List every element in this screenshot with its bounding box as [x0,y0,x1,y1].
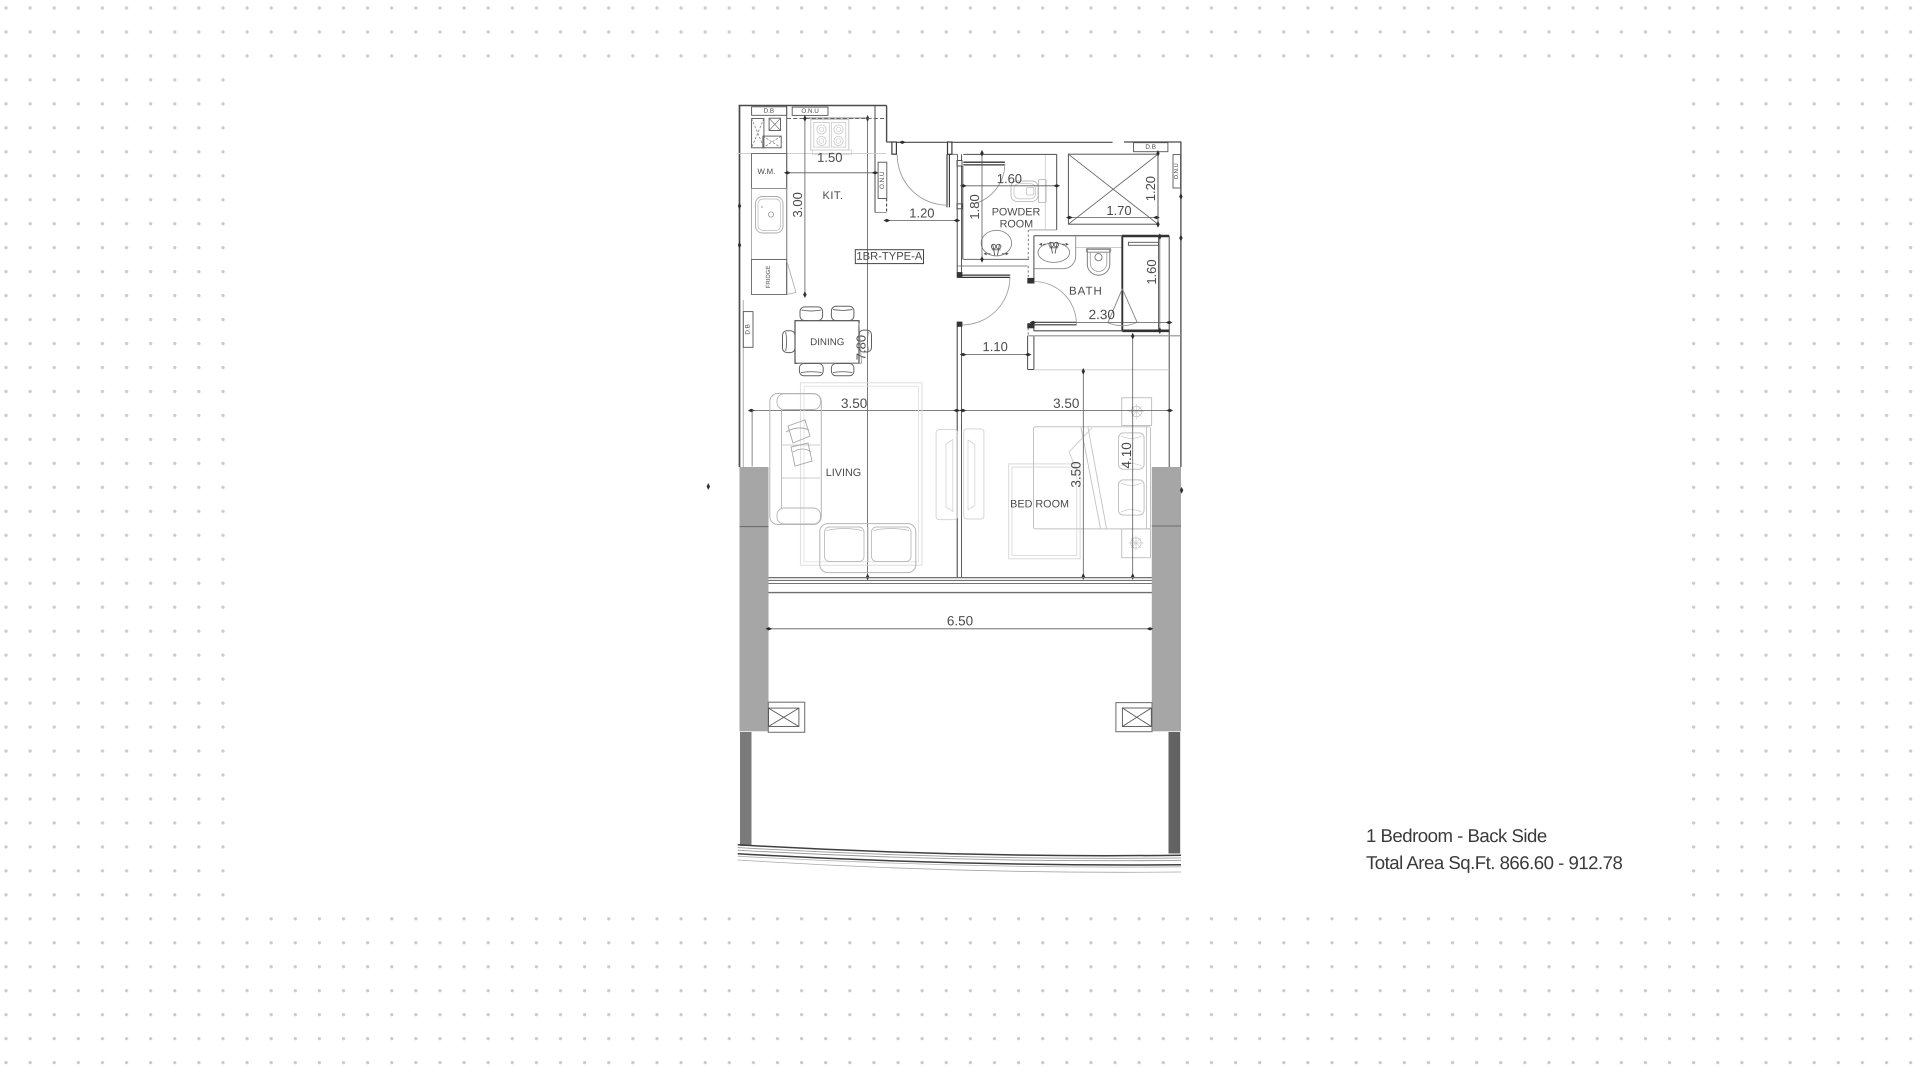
svg-text:1.80: 1.80 [967,194,982,219]
svg-text:O.N.U: O.N.U [1173,163,1180,179]
svg-text:1.60: 1.60 [1144,259,1159,284]
svg-text:BED ROOM: BED ROOM [1010,498,1069,510]
svg-text:3.50: 3.50 [1053,396,1079,411]
svg-text:3.00: 3.00 [790,192,805,217]
svg-text:1.10: 1.10 [983,339,1008,354]
svg-text:POWDER: POWDER [992,206,1041,218]
svg-text:1.50: 1.50 [817,150,842,165]
svg-text:KIT.: KIT. [823,190,844,202]
svg-text:1BR-TYPE-A: 1BR-TYPE-A [856,251,922,263]
svg-text:O.N.U: O.N.U [879,171,886,189]
svg-text:LIVING: LIVING [826,467,861,479]
svg-text:3.50: 3.50 [841,396,867,411]
svg-text:D.B: D.B [764,108,775,115]
svg-text:BATH: BATH [1069,286,1103,298]
svg-text:W.M.: W.M. [758,167,776,176]
svg-text:4.10: 4.10 [1119,442,1134,468]
svg-text:6.50: 6.50 [947,613,973,628]
svg-text:FRIDGE: FRIDGE [765,266,772,289]
svg-text:D.B: D.B [745,324,752,335]
svg-text:3.50: 3.50 [1068,461,1083,487]
svg-text:DINING: DINING [810,337,844,348]
svg-text:D.B: D.B [1145,144,1156,151]
svg-text:1.60: 1.60 [997,171,1022,186]
svg-text:ROOM: ROOM [1000,218,1034,230]
svg-text:1.20: 1.20 [1143,176,1158,201]
svg-text:1.70: 1.70 [1106,203,1131,218]
svg-text:O.N.U: O.N.U [801,108,819,115]
svg-text:2.30: 2.30 [1089,307,1115,322]
svg-text:1.20: 1.20 [909,205,934,220]
